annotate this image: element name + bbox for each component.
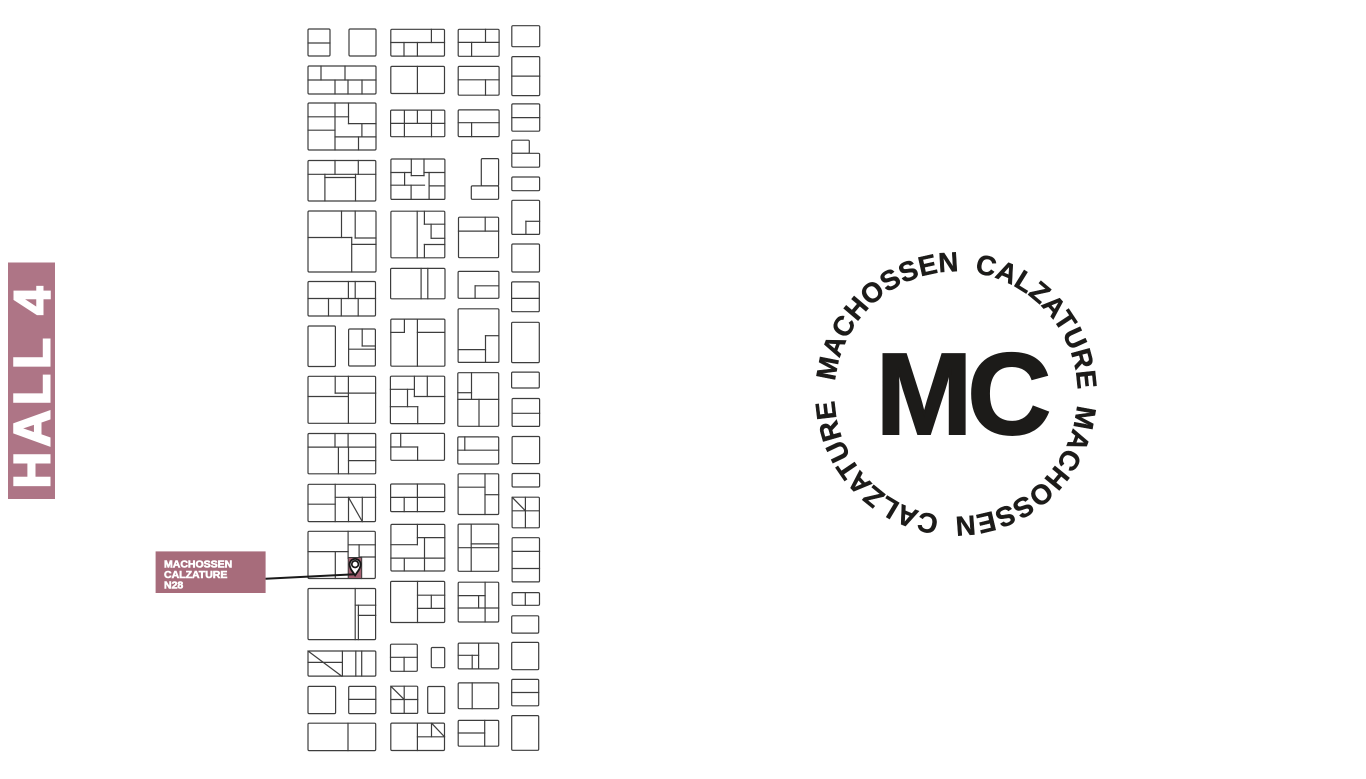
svg-text:MC: MC bbox=[876, 329, 1049, 459]
svg-text:HALL 4: HALL 4 bbox=[3, 282, 60, 489]
svg-text:N28: N28 bbox=[164, 579, 183, 591]
